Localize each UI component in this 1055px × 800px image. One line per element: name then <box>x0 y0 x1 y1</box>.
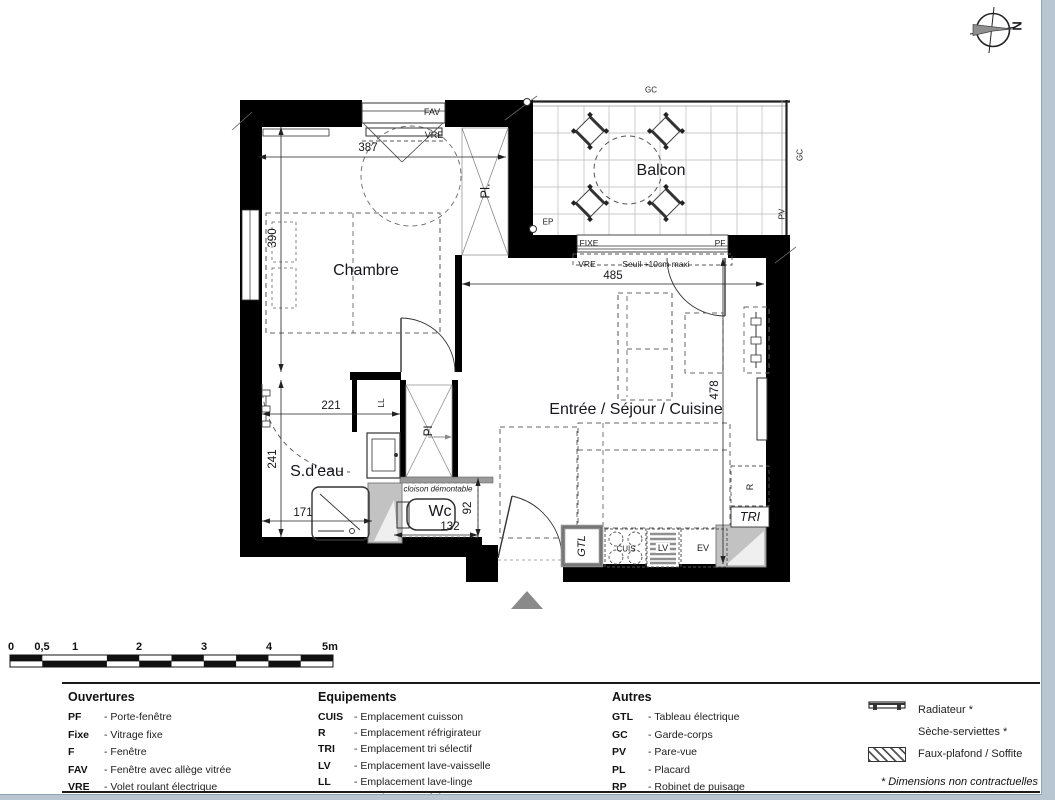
legend-item: CUIS- Emplacement cuisson <box>318 709 539 725</box>
legend-item: GC- Garde-corps <box>612 727 745 745</box>
room-label-balcony: Balcon <box>637 162 686 180</box>
floorplan-drawing <box>0 0 1041 680</box>
sofa <box>618 293 672 400</box>
dim-wc-depth: 92 <box>462 502 474 515</box>
legend: Ouvertures PF- Porte-fenêtre Fixe- Vitra… <box>62 682 1040 684</box>
legend-item: R- Emplacement réfrigirateur <box>318 725 539 741</box>
ann-closet-upper: Pl. <box>478 183 493 198</box>
room-label-bedroom: Chambre <box>333 262 399 280</box>
ann-seuil: Seuil +10cm maxi <box>622 259 689 269</box>
ep-downpipe-icon <box>530 226 537 233</box>
entry-cabinet <box>500 427 577 538</box>
dim-shower-width: 221 <box>321 400 340 412</box>
scale-tick: 4 <box>266 641 272 653</box>
room-label-living: Entrée / Séjour / Cuisine <box>549 401 722 419</box>
legend-item: Fixe- Vitrage fixe <box>68 727 231 745</box>
room-label-shower: S.d'eau <box>290 463 344 481</box>
legend-item: TRI- Emplacement tri sélectif <box>318 741 539 757</box>
scale-tick: 2 <box>136 641 142 653</box>
ann-fridge: R <box>745 484 755 491</box>
legend-title: Ouvertures <box>68 690 231 704</box>
ann-gtl: GTL <box>576 535 588 556</box>
ann-pv: PV <box>778 209 787 220</box>
dim-bedroom-width: 387 <box>358 142 377 154</box>
legend-item: LL- Emplacement lave-linge <box>318 774 539 790</box>
dim-bedroom-depth: 390 <box>267 228 279 247</box>
side-table <box>685 313 723 373</box>
ann-vre-living: VRE <box>578 259 595 269</box>
washbasin <box>367 433 400 478</box>
fixtures-layer <box>262 312 769 567</box>
legend-item: PL- Placard <box>612 762 745 780</box>
ann-ev: EV <box>697 543 709 553</box>
north-compass-icon <box>962 4 1032 59</box>
scale-tick: 0 <box>8 641 14 653</box>
ann-cloison: cloison démontable <box>404 485 473 494</box>
kitchen-worktop <box>578 423 730 528</box>
scale-tick: 1 <box>72 641 78 653</box>
ann-gc-top: GC <box>645 86 657 95</box>
legend-autres: Autres GTL- Tableau électrique GC- Garde… <box>612 690 745 795</box>
towel-dryer-shower-room <box>262 390 270 427</box>
legend-symbol-soffit: Faux-plafond / Soffite <box>868 744 1022 764</box>
ann-gc-right: GC <box>796 149 805 161</box>
ann-cuis: CUIS <box>616 545 635 554</box>
legend-symbols: Radiateur * Sèche-serviettes * Faux-plaf… <box>868 700 1022 766</box>
radiator-living <box>757 378 767 440</box>
soffit-icon <box>868 747 908 762</box>
window-left <box>242 210 259 300</box>
legend-item: GTL- Tableau électrique <box>612 709 745 727</box>
legend-title: Autres <box>612 690 745 704</box>
legend-item: PF- Porte-fenêtre <box>68 709 231 727</box>
legend-item: LV- Emplacement lave-vaisselle <box>318 758 539 774</box>
shower <box>312 487 369 540</box>
ann-fav: FAV <box>424 107 440 117</box>
room-label-wc: Wc <box>428 503 451 521</box>
ann-ep: EP <box>543 218 554 227</box>
ann-fixe: FIXE <box>580 238 599 248</box>
ann-pf: PF <box>715 238 726 248</box>
towel-dryer-living <box>751 312 761 368</box>
legend-bottom-rule <box>62 791 1040 793</box>
legend-item: FAV- Fenêtre avec allège vitrée <box>68 762 231 780</box>
scale-tick: 0,5 <box>34 641 49 653</box>
dim-shower-depth: 241 <box>267 449 279 468</box>
dim-living-depth: 478 <box>709 380 721 399</box>
dim-wc-width: 132 <box>440 521 459 533</box>
scale-tick: 5m <box>322 641 338 653</box>
floorplan-page: N Chambre Balcon Entrée / Séjour / Cuisi… <box>0 0 1042 795</box>
north-label: N <box>1010 21 1025 30</box>
ann-tri: TRI <box>740 510 760 524</box>
scalebar-graphic <box>0 650 350 672</box>
ann-lv: LV <box>656 543 670 553</box>
ann-washer: LL <box>376 398 386 407</box>
walls-layer <box>240 100 790 582</box>
ann-vre-bedroom: VRE <box>425 130 444 140</box>
legend-footnote: * Dimensions non contractuelles <box>881 776 1038 788</box>
dim-shower-inner: 171 <box>293 507 312 519</box>
legend-ouvertures: Ouvertures PF- Porte-fenêtre Fixe- Vitra… <box>68 690 231 795</box>
legend-item: F- Fenêtre <box>68 744 231 762</box>
legend-title: Equipements <box>318 690 539 704</box>
legend-item: PV- Pare-vue <box>612 744 745 762</box>
entrance-arrow-icon <box>511 591 543 609</box>
legend-equipements: Equipements CUIS- Emplacement cuisson R-… <box>318 690 539 795</box>
ann-closet-lower: Pl <box>421 426 435 437</box>
scale-tick: 3 <box>201 641 207 653</box>
window-living <box>577 235 728 252</box>
legend-symbol-towel-dryer: Sèche-serviettes * <box>868 722 1022 742</box>
dim-living-width: 485 <box>603 270 622 282</box>
ep-downpipe-icon <box>524 99 531 106</box>
